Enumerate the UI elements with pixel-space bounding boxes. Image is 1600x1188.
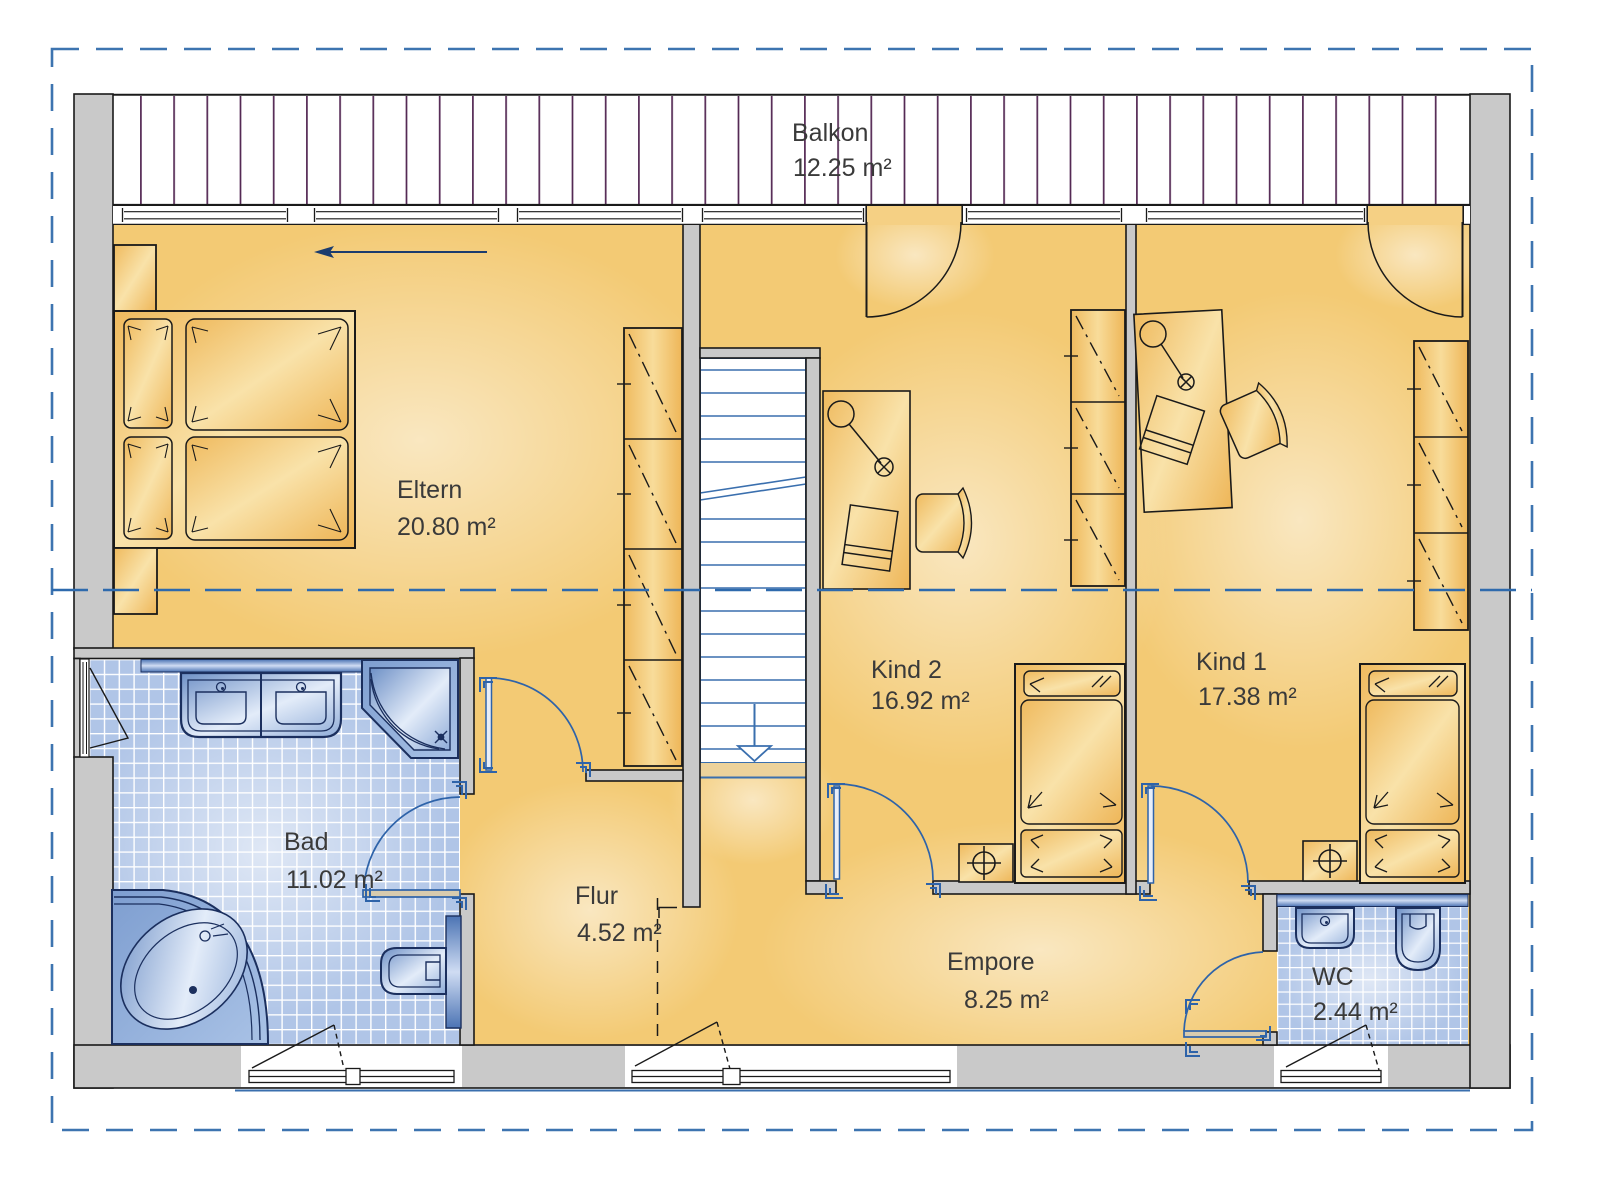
svg-text:Kind 2: Kind 2 [871,656,942,684]
svg-text:2.44 m²: 2.44 m² [1313,998,1398,1026]
svg-text:17.38 m²: 17.38 m² [1198,683,1297,711]
svg-text:Kind 1: Kind 1 [1196,648,1267,676]
svg-text:Balkon: Balkon [792,119,868,147]
svg-text:Eltern: Eltern [397,476,462,504]
svg-text:WC: WC [1312,963,1354,991]
svg-text:20.80 m²: 20.80 m² [397,513,496,541]
svg-text:8.25 m²: 8.25 m² [964,986,1049,1014]
svg-text:11.02 m²: 11.02 m² [286,866,383,894]
svg-text:Flur: Flur [575,882,618,910]
svg-text:12.25 m²: 12.25 m² [793,154,892,182]
svg-text:4.52 m²: 4.52 m² [577,919,662,947]
svg-text:Bad: Bad [284,828,328,856]
svg-text:16.92 m²: 16.92 m² [871,687,970,715]
svg-text:Empore: Empore [947,948,1035,976]
